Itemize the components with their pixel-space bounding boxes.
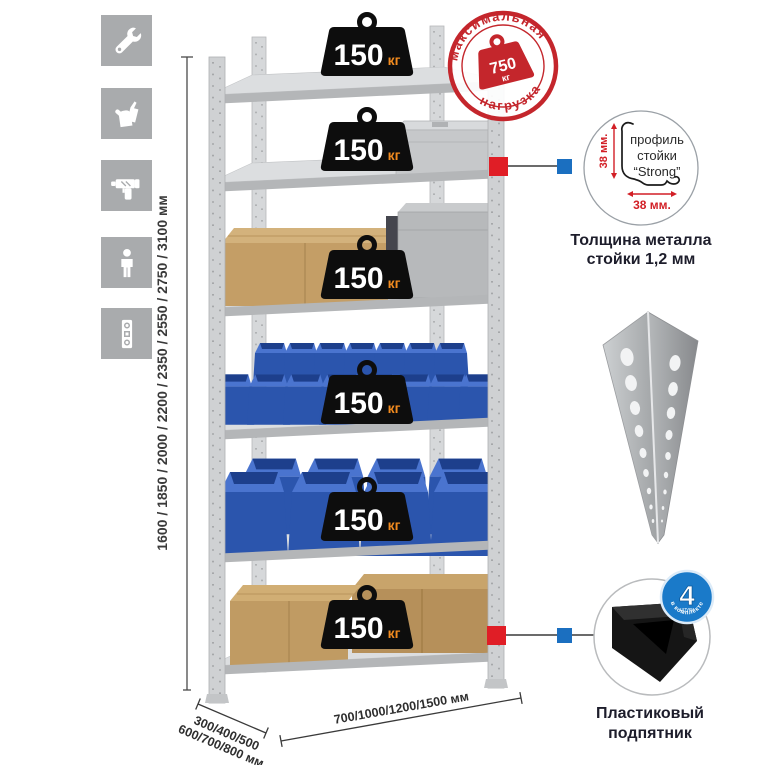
foot-callout-connector	[487, 626, 594, 645]
blue-marker	[557, 628, 572, 643]
max-load-stamp: максимальная нагрузка 750 кг	[436, 0, 568, 131]
red-marker	[487, 626, 506, 645]
corner-post-image	[603, 312, 698, 543]
svg-text:38 мм.: 38 мм.	[598, 134, 610, 169]
profile-caption-line2: стойки 1,2 мм	[587, 251, 696, 268]
width-dimension-label: 700/1000/1200/1500 мм	[333, 689, 470, 727]
svg-text:профиль: профиль	[630, 132, 684, 147]
red-marker	[489, 157, 508, 176]
svg-text:38 мм.: 38 мм.	[633, 198, 671, 212]
svg-text:“Strong”: “Strong”	[634, 164, 681, 179]
height-dimension	[181, 57, 193, 690]
depth-dimension-label: 300/400/500 600/700/800 мм	[176, 709, 271, 765]
foot-caption-line2: подпятник	[608, 725, 693, 742]
foot-caption-line1: Пластиковый	[596, 705, 704, 722]
shelf-load-badge: 150кг	[321, 110, 413, 172]
quantity-badge: 4 штуки в комплекте	[661, 571, 713, 623]
plastic-foot-circle: 4 штуки в комплекте	[594, 571, 713, 695]
blue-marker	[557, 159, 572, 174]
height-dimension-label: 1600 / 1850 / 2000 / 2200 / 2350 / 2550 …	[154, 195, 170, 550]
shelving-infographic: 1600 / 1850 / 2000 / 2200 / 2350 / 2550 …	[0, 0, 765, 765]
profile-callout-connector	[489, 157, 572, 176]
svg-text:стойки: стойки	[637, 148, 677, 163]
scene: 1600 / 1850 / 2000 / 2200 / 2350 / 2550 …	[0, 0, 765, 765]
profile-detail-circle: 38 мм. 38 мм. профиль стойки “Strong”	[584, 111, 698, 225]
profile-caption-line1: Толщина металла	[570, 232, 711, 249]
shelf-load-badge: 150кг	[321, 15, 413, 77]
